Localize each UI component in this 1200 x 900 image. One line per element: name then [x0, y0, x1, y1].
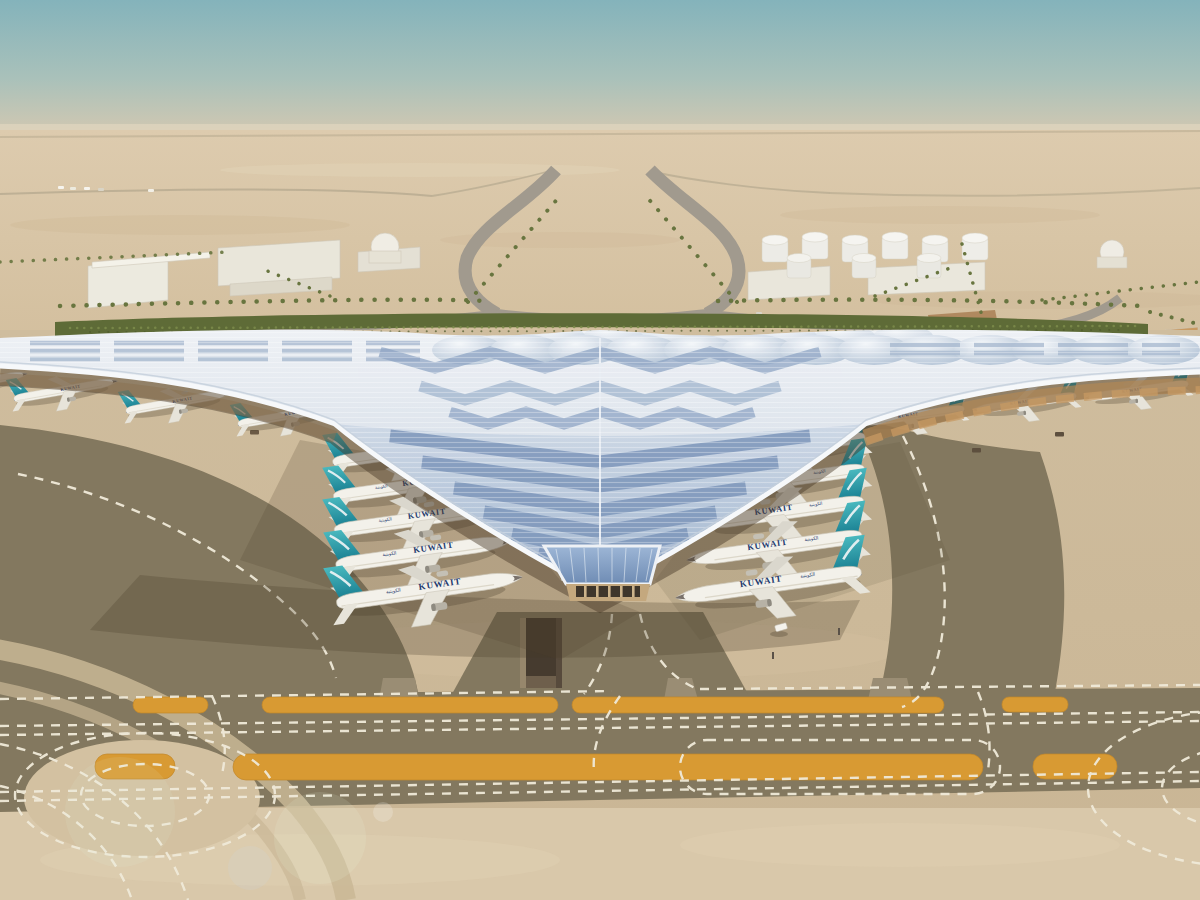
- render-canvas: KUWAIT KUWAIT KUWAIT KUWAIT KUWAIT KUWAI…: [0, 0, 1200, 900]
- sky: [0, 0, 1200, 142]
- airport-aerial-render: KUWAIT KUWAIT KUWAIT KUWAIT KUWAIT KUWAI…: [0, 0, 1200, 900]
